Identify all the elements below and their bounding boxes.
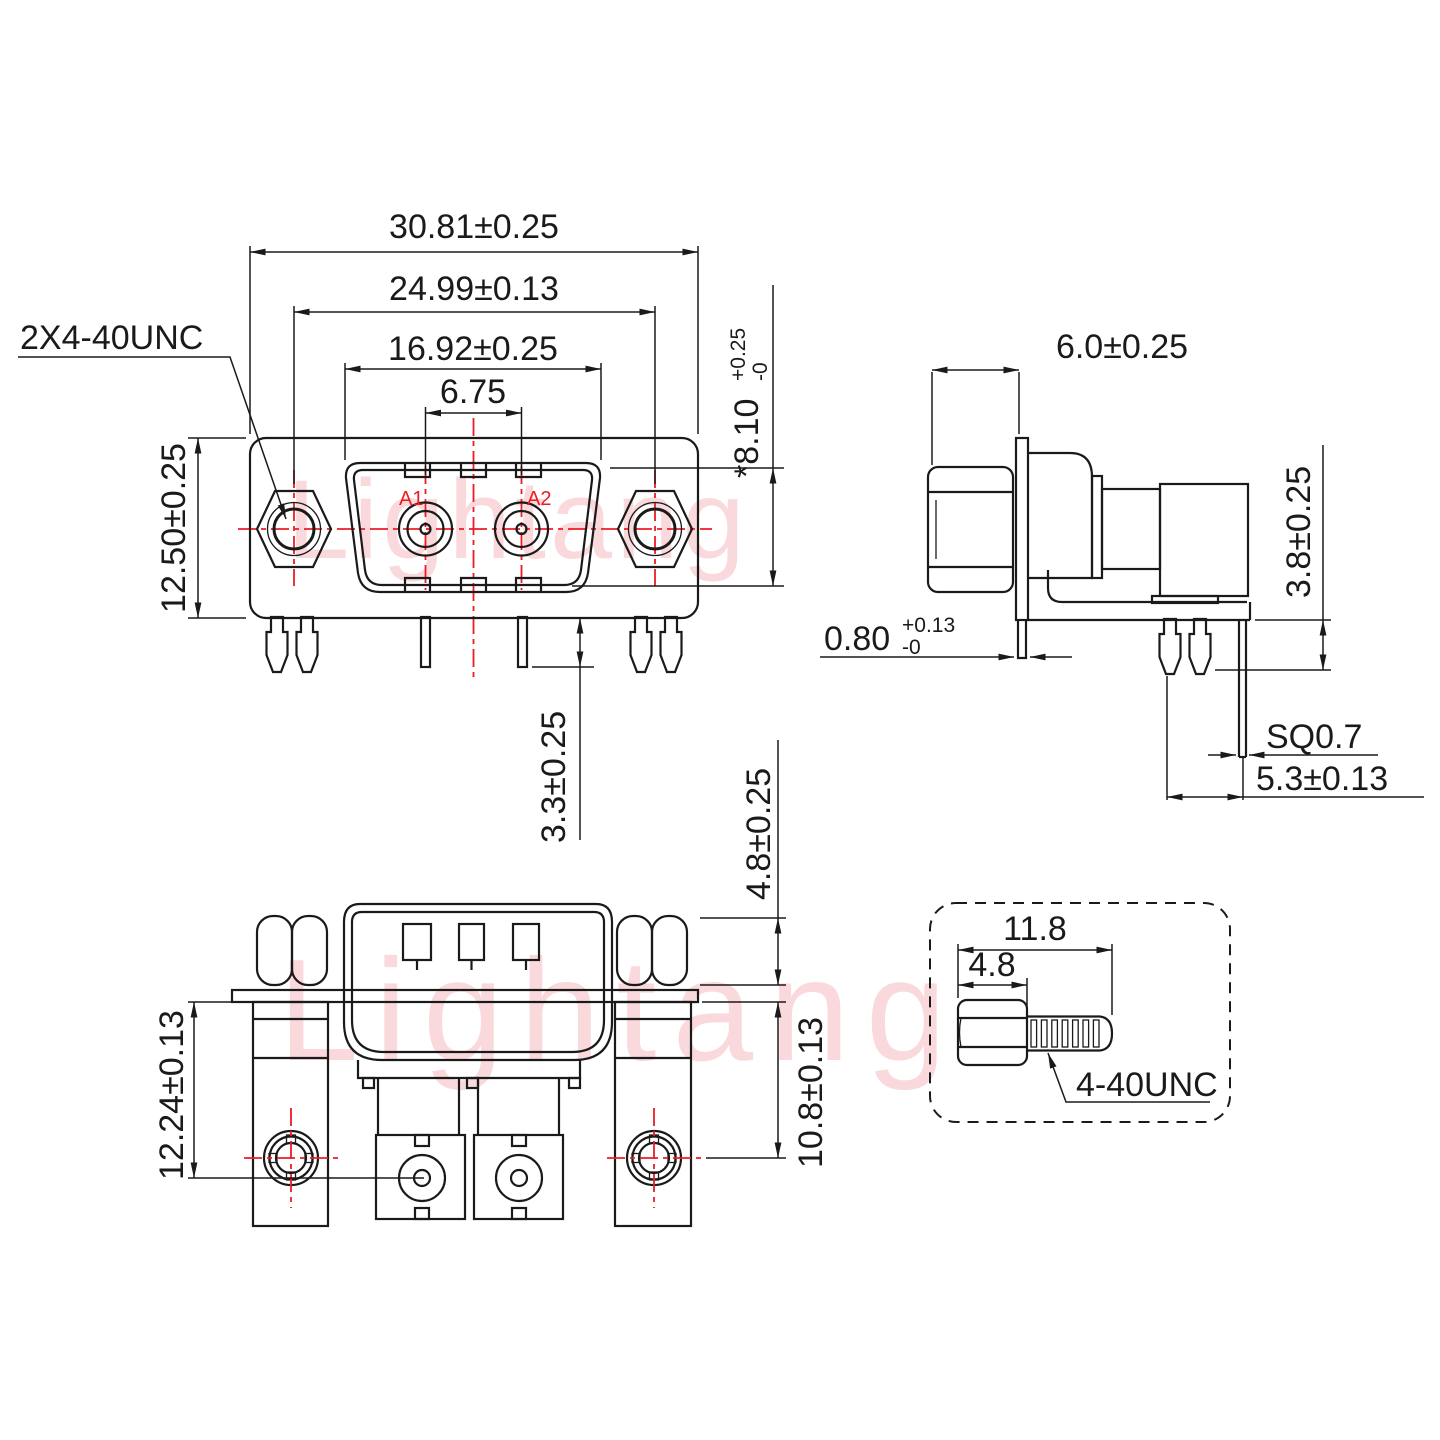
thread-rib	[1083, 1020, 1089, 1047]
watermarks: Lightang Lightang	[278, 457, 962, 1091]
coax-module	[1160, 484, 1248, 596]
dim-height: 12.50±0.25	[155, 443, 193, 613]
lock-prong	[1160, 619, 1181, 674]
block-notch	[512, 1135, 526, 1146]
dim-pin-square: SQ0.7	[1266, 718, 1362, 756]
thread-rib	[1052, 1020, 1058, 1047]
dim-height-group: 12.50±0.25	[155, 443, 193, 613]
hex-head	[958, 1000, 1027, 1065]
side-flange-leg	[1018, 620, 1026, 658]
dim-shell-height: *8.10	[728, 399, 766, 478]
thread-rib	[1062, 1020, 1068, 1047]
side-dimensions: 6.0±0.25 3.8±0.25 0.80 +0.13 -0 SQ0.7 5.…	[820, 328, 1424, 800]
dim-pin-offset: 5.3±0.13	[1256, 760, 1388, 798]
thread-rib	[1093, 1020, 1099, 1047]
screw-dimensions: 11.8 4.8 4-40UNC	[958, 910, 1218, 1104]
dim-head-depth: 6.0±0.25	[1056, 328, 1188, 366]
shell-step	[1092, 476, 1102, 578]
side-flange	[1016, 438, 1028, 620]
coax-block	[474, 1135, 563, 1219]
solder-pin	[421, 617, 430, 667]
dim-flange-tol-minus: -0	[902, 636, 921, 659]
dim-contact-pitch: 6.75	[440, 373, 506, 411]
contact-label-a1: A1	[399, 488, 423, 510]
dim-total-length: 11.8	[1003, 910, 1067, 948]
bottom-coax-block-a1	[376, 1135, 465, 1219]
dim-shell-height-tol-minus: -0	[749, 362, 772, 381]
dim-pin-height: 3.8±0.25	[1280, 466, 1318, 598]
lock-prong	[1190, 619, 1211, 674]
side-body	[1028, 453, 1248, 603]
dim-flange-main: 0.80	[824, 620, 890, 658]
dim-flange-tol-plus: +0.13	[902, 614, 955, 637]
lock-prong	[661, 617, 682, 672]
thread-note: 2X4-40UNC	[20, 319, 203, 357]
dim-pin-length-group: 3.3±0.25	[535, 711, 573, 843]
lock-prong	[267, 617, 288, 672]
connector-drawing-svg: Lightang Lightang	[0, 0, 1440, 1440]
dim-standoff-height: 4.8±0.25	[740, 768, 778, 900]
side-signal-pin	[1239, 620, 1246, 757]
dim-overall-width: 30.81±0.25	[389, 208, 559, 246]
block-notch	[415, 1135, 429, 1146]
technical-drawing-canvas: Lightang Lightang	[0, 0, 1440, 1440]
dim-contact-height: 10.8±0.13	[792, 1017, 830, 1168]
contact-label-a2: A2	[527, 488, 551, 510]
watermark-bottom: Lightang	[278, 929, 962, 1091]
thread-rib	[1031, 1020, 1037, 1047]
shell-profile	[1028, 453, 1092, 578]
bottom-coax-block-a2	[474, 1135, 563, 1219]
hex-head	[928, 467, 1013, 592]
insulator-step	[1102, 489, 1160, 569]
dim-shell-height-group: *8.10 +0.25 -0	[727, 328, 772, 478]
dim-shell-height-tol-plus: +0.25	[727, 328, 750, 381]
block-notch	[415, 1208, 429, 1219]
dim-lock-height-group: 12.24±0.13	[153, 1010, 191, 1180]
dim-contact-height-group: 10.8±0.13	[792, 1017, 830, 1168]
dim-pin-length: 3.3±0.25	[535, 711, 573, 843]
coax-block	[376, 1135, 465, 1219]
side-board-lock	[1160, 619, 1211, 674]
coax-outer	[496, 1155, 542, 1201]
dim-mount-pitch: 24.99±0.13	[389, 270, 559, 308]
bracket-fillet	[1048, 570, 1062, 602]
dim-pin-height-group: 3.8±0.25	[1280, 466, 1318, 598]
dim-standoff-height-group: 4.8±0.25	[740, 768, 778, 900]
thread-rib	[1041, 1020, 1047, 1047]
bottom-centerlines	[244, 1108, 701, 1208]
screw-detail: 11.8 4.8 4-40UNC	[930, 903, 1230, 1122]
coax-pin	[511, 1170, 527, 1186]
dim-shell-width: 16.92±0.25	[388, 330, 558, 368]
side-jackscrew-head	[928, 467, 1013, 592]
lock-prong	[631, 617, 652, 672]
thread-label: 4-40UNC	[1076, 1066, 1218, 1104]
side-view: 6.0±0.25 3.8±0.25 0.80 +0.13 -0 SQ0.7 5.…	[820, 328, 1424, 800]
screw-thread	[1027, 1017, 1112, 1051]
solder-pin	[518, 617, 527, 667]
screw-hex-head	[958, 1000, 1027, 1065]
dim-head-length: 4.8	[968, 946, 1015, 984]
thread-rib	[1073, 1020, 1079, 1047]
dim-lock-height: 12.24±0.13	[153, 1010, 191, 1180]
block-notch	[512, 1208, 526, 1219]
lock-prong	[297, 617, 318, 672]
